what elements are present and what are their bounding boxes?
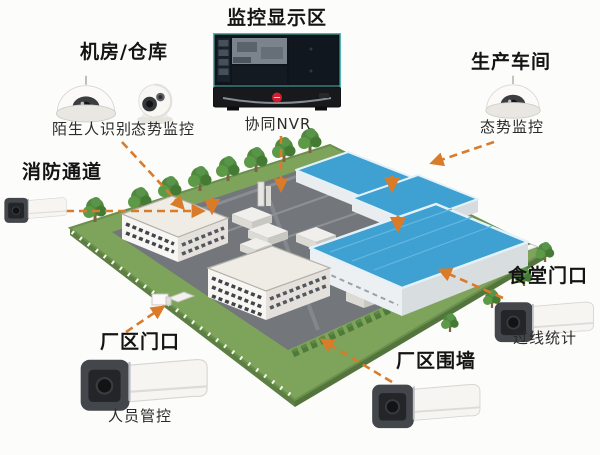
- zone-title-monitor-display: 监控显示区: [227, 8, 327, 29]
- device-label-stranger-recognition: 陌生人识别: [52, 118, 132, 139]
- device-label-nvr: 协同NVR: [245, 113, 312, 134]
- bullet-camera-icon: [370, 378, 484, 434]
- device-label-situation-monitoring-right: 态势监控: [480, 116, 544, 137]
- solution-diagram: 机房/仓库 陌生人识别 态势监控 监控显示区 协同NVR 生产车间 态势监控 消…: [0, 0, 600, 455]
- zone-title-factory-gate: 厂区门口: [100, 332, 180, 353]
- device-label-line-crossing: 过线统计: [513, 327, 577, 348]
- device-label-situation-monitoring-left: 态势监控: [131, 118, 195, 139]
- zone-title-perimeter-wall: 厂区围墙: [396, 351, 476, 372]
- zone-title-workshop: 生产车间: [471, 52, 551, 73]
- zone-title-canteen: 食堂门口: [508, 266, 588, 287]
- zone-title-machine-room: 机房/仓库: [80, 42, 168, 63]
- nvr-monitor-icon: [213, 33, 341, 115]
- connector-workshop: [432, 142, 494, 163]
- zone-title-fire-passage: 消防通道: [22, 162, 102, 183]
- device-label-personnel-control: 人员管控: [108, 405, 172, 426]
- connector-gate: [126, 307, 163, 332]
- bullet-camera-icon: [3, 194, 69, 228]
